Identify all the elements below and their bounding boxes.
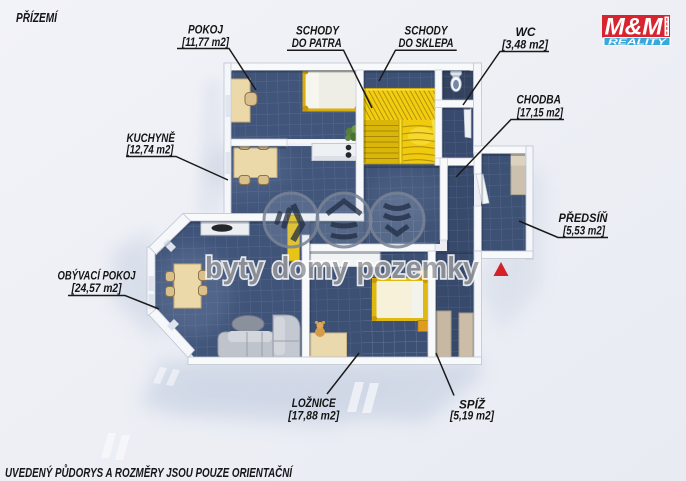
svg-text:[17,15 m2]: [17,15 m2]: [516, 106, 564, 120]
svg-text:[3,48 m2]: [3,48 m2]: [501, 38, 549, 52]
svg-text:REALITY: REALITY: [608, 38, 667, 47]
svg-text:UVEDENÝ PŮDORYS A ROZMĚRY JSOU: UVEDENÝ PŮDORYS A ROZMĚRY JSOU POUZE ORI…: [5, 464, 294, 480]
svg-text:byty domy pozemky: byty domy pozemky: [205, 250, 480, 285]
svg-text:CHODBA: CHODBA: [516, 93, 561, 107]
svg-text:DO PATRA: DO PATRA: [292, 36, 342, 50]
svg-text:[5,53 m2]: [5,53 m2]: [562, 224, 606, 238]
svg-text:PŘÍZEMÍ: PŘÍZEMÍ: [16, 10, 59, 25]
svg-text:[17,88 m2]: [17,88 m2]: [287, 409, 340, 423]
svg-text:[24,57 m2]: [24,57 m2]: [71, 281, 123, 295]
svg-text:DO SKLEPA: DO SKLEPA: [399, 36, 454, 50]
svg-text:[12,74 m2]: [12,74 m2]: [126, 143, 175, 157]
svg-text:[11,77 m2]: [11,77 m2]: [181, 35, 230, 49]
svg-text:M&M: M&M: [605, 14, 664, 41]
svg-text:[5,19 m2]: [5,19 m2]: [449, 409, 495, 423]
